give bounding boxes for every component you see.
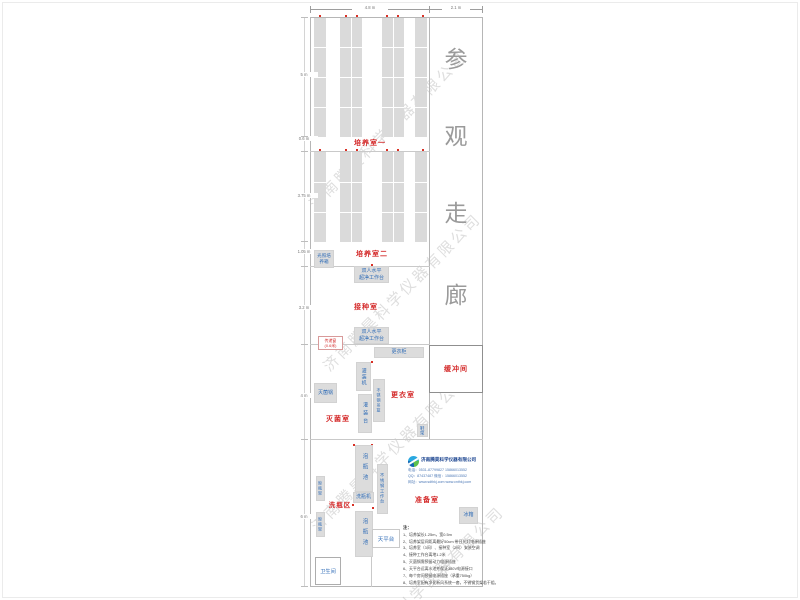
pass-window-size: (0.6米) (325, 343, 337, 348)
equipment-wardrobe: 更衣柜 (374, 347, 424, 358)
corridor-label-char: 参 (444, 48, 468, 71)
dim-tick-left (301, 241, 308, 242)
dim-label-left: 3.2 m (290, 305, 318, 310)
equipment-shoe-rack: 鞋架 (417, 424, 428, 437)
corridor-label-char: 廊 (444, 284, 468, 307)
equipment-soaking-pool-2: 泡瓶池 (355, 511, 373, 557)
rack-shelf-line (340, 107, 362, 108)
equipment-sterilizer: 灭菌锅 (314, 383, 337, 403)
equipment-clean-bench-2: 双人水平 超净工作台 (354, 327, 389, 344)
balance-table-label: 天平台 (378, 535, 395, 543)
company-logo-icon (408, 456, 419, 467)
notes-heading: 注： (403, 524, 498, 532)
dim-tick-left (301, 344, 308, 345)
equipment-fridge: 冰箱 (459, 507, 478, 524)
dim-label-left: 5 m (290, 72, 318, 77)
buffer-room: 缓冲间 (429, 345, 483, 393)
room-label-buffer: 缓冲间 (444, 364, 468, 374)
rack-shelf-line (314, 212, 326, 213)
company-phone: 电话：0531-87799827 15866013552 (408, 468, 467, 473)
rack-divider (351, 152, 352, 242)
door-marker (371, 361, 373, 363)
equipment-filling-machine: 灌装机 (356, 362, 371, 391)
rack-shelf-line (314, 107, 326, 108)
rack-shelf-line (382, 47, 404, 48)
dim-tick-left (301, 266, 308, 267)
wall-corridor-lower (429, 393, 430, 440)
rack-shelf-line (340, 212, 362, 213)
dim-label-top-right: 2.1 m (442, 5, 470, 10)
company-qq-wechat: QQ：87437487 微信：15866013552 (408, 474, 467, 479)
dim-tick-left (301, 586, 308, 587)
dim-tick-left (301, 151, 308, 152)
note-item: 1、培养架长1.25m，宽0.5m (403, 532, 498, 539)
corridor-label-char: 走 (444, 202, 468, 225)
equipment-clean-bench-1: 双人水平 超净工作台 (354, 266, 389, 283)
wall-right (482, 17, 483, 587)
note-item: 7、每个房间预留电源插座（承重750kg） (403, 573, 498, 580)
equipment-drying-rack-1: 晾瓶架 (316, 476, 325, 501)
logo-stripe (408, 456, 419, 465)
dimension-tick (310, 6, 311, 13)
dimension-tick (482, 6, 483, 13)
room-label-toilet: 卫生间 (320, 568, 336, 575)
rack-shelf-line (382, 107, 404, 108)
dim-tick-left (301, 439, 308, 440)
room-label-culture-room-2: 培养室二 (350, 249, 394, 259)
rack-shelf-line (415, 77, 427, 78)
note-item: 8、培养室配有净化新风系统一套，不锈钢货架若干组。 (403, 580, 498, 587)
room-label-inoculation: 接种室 (351, 302, 381, 312)
company-name: 济南腾昊科学仪器有限公司 (421, 457, 476, 463)
rack-shelf-line (415, 47, 427, 48)
wall-prep-top (310, 439, 483, 440)
dim-tick-left (301, 17, 308, 18)
wall-culture-rooms (310, 151, 430, 152)
rack-shelf-line (415, 182, 427, 183)
equipment-light-incubator: 光照培养箱 (314, 250, 334, 268)
equipment-drying-rack-2: 晾瓶架 (316, 512, 325, 537)
rack-shelf-line (340, 182, 362, 183)
rack-shelf-line (314, 77, 326, 78)
clean-bench-label-line2: 超净工作台 (359, 336, 384, 342)
note-item: 5、灭菌锅需预留动力电源插座 (403, 559, 498, 566)
equipment-ss-worktable: 不锈钢工作台 (377, 464, 388, 514)
note-item: 4、接种工作台离地1.2米 (403, 552, 498, 559)
wall-corridor-upper (429, 17, 430, 345)
wall-balance-divider (371, 556, 372, 587)
corridor-label-char: 观 (444, 125, 468, 148)
equipment-filling-table: 灌装台 (358, 394, 372, 433)
rack-shelf-line (340, 77, 362, 78)
equipment-soaking-pool-1: 泡瓶池 (355, 445, 373, 492)
dim-label-left: 6 m (290, 514, 318, 519)
rack-shelf-line (382, 212, 404, 213)
equipment-bottle-washer: 洗瓶机 (353, 492, 374, 503)
rack-shelf-line (382, 77, 404, 78)
dim-tick-left (301, 136, 308, 137)
wall-left (310, 17, 311, 587)
rack-shelf-line (382, 182, 404, 183)
room-label-sterilization: 灭菌室 (325, 414, 351, 424)
equipment-ss-hanging-basket: 不锈钢吊篮 (373, 379, 385, 422)
note-item: 3、培养室（3间）、接种室（2间）安装空调 (403, 545, 498, 552)
toilet-room: 卫生间 (315, 557, 341, 585)
note-item: 2、培养架层间距离最好50cm 带日光灯电源插座 (403, 539, 498, 546)
door-marker (372, 507, 374, 509)
dimension-tick (429, 6, 430, 13)
dim-label-top-left: 4.8 m (352, 5, 388, 10)
rack-divider (393, 152, 394, 242)
rack-shelf-line (415, 107, 427, 108)
clean-bench-label-line2: 超净工作台 (359, 275, 384, 281)
equipment-pass-window: 传递窗 (0.6米) (318, 336, 343, 350)
floor-plan: 济南腾昊科学仪器有限公司济南腾昊科学仪器有限公司济南腾昊科学仪器有限公司济南腾昊… (0, 0, 800, 600)
note-item: 6、天平台远离水池并保证380V电源接口 (403, 566, 498, 573)
door-marker (352, 504, 354, 506)
culture-rack (415, 152, 427, 242)
room-label-culture-room-1: 培养室一 (348, 138, 392, 148)
rack-shelf-line (415, 212, 427, 213)
room-label-prep: 准备室 (412, 495, 442, 505)
notes-block: 注： 1、培养架长1.25m，宽0.5m2、培养架层间距离最好50cm 带日光灯… (403, 524, 498, 586)
rack-shelf-line (314, 182, 326, 183)
wall-top (310, 17, 483, 18)
rack-shelf-line (340, 47, 362, 48)
company-website: 网址：www.sdthkj.com www.cnthkj.com (408, 480, 471, 485)
room-label-washing-area: 洗瓶区 (328, 499, 352, 509)
dimension-line-left (304, 17, 305, 586)
rack-shelf-line (314, 47, 326, 48)
dim-label-left: 3.75 m (290, 193, 318, 198)
equipment-balance-table: 天平台 (372, 529, 400, 548)
room-label-changing: 更衣室 (390, 390, 416, 400)
